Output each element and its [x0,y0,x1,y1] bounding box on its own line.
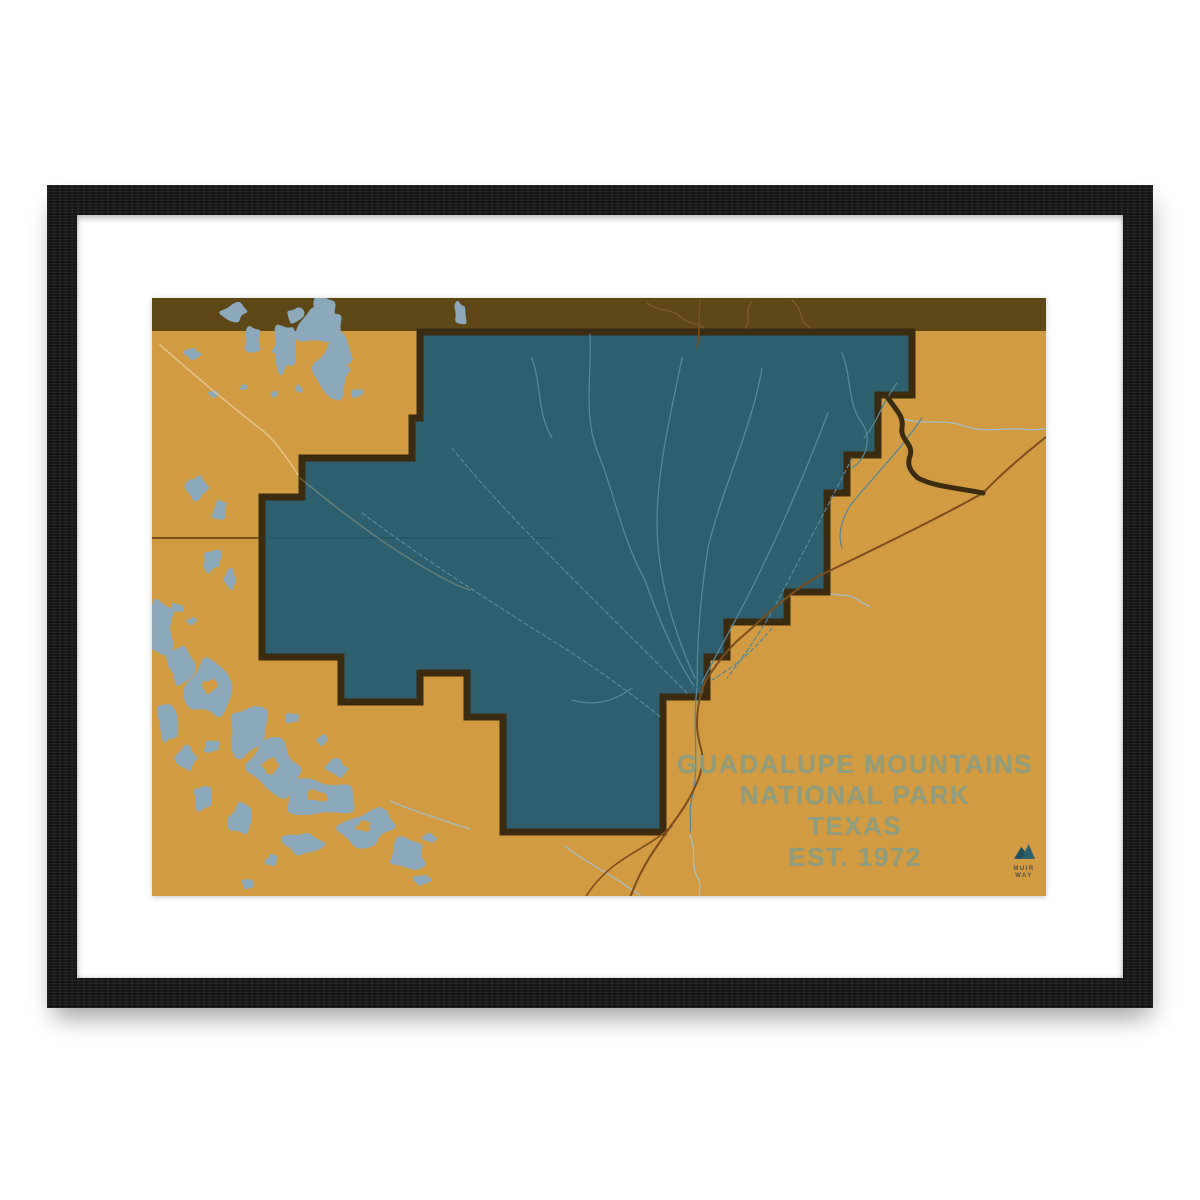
park-state: TEXAS [635,811,1046,842]
title-block: GUADALUPE MOUNTAINS NATIONAL PARK TEXAS … [635,749,1046,873]
map-print: GUADALUPE MOUNTAINS NATIONAL PARK TEXAS … [152,298,1046,896]
top-stripe [152,298,1046,331]
mountain-logo-icon [1012,842,1036,861]
picture-frame: GUADALUPE MOUNTAINS NATIONAL PARK TEXAS … [47,185,1153,1008]
park-name-line1: GUADALUPE MOUNTAINS [635,749,1046,780]
logo-text-muir: MUIR [1002,866,1046,873]
lake [285,713,299,723]
mat-board: GUADALUPE MOUNTAINS NATIONAL PARK TEXAS … [77,215,1123,978]
lake [313,298,337,331]
logo-text-way: WAY [1002,873,1046,880]
park-established: EST. 1972 [635,842,1046,873]
muirway-logo: MUIR WAY [1002,842,1046,880]
park-name-line2: NATIONAL PARK [635,780,1046,811]
lake [244,326,260,353]
product-photo: GUADALUPE MOUNTAINS NATIONAL PARK TEXAS … [0,0,1200,1200]
